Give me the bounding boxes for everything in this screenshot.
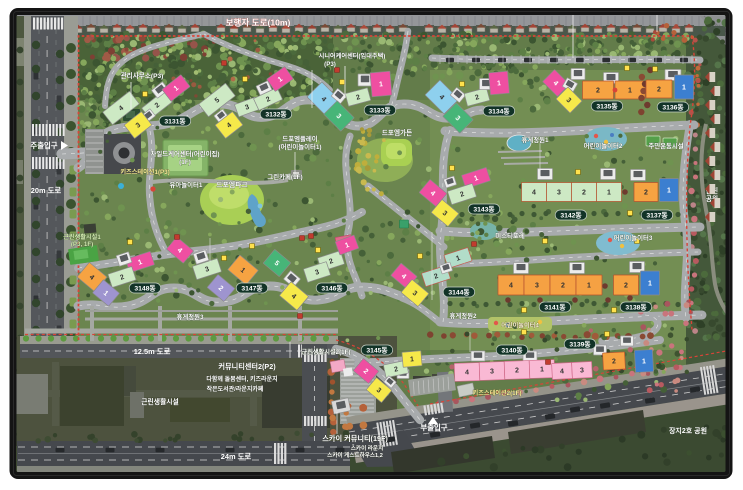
svg-text:주출입구: 주출입구 [30,141,57,150]
svg-text:1: 1 [642,358,646,365]
svg-text:4: 4 [560,368,564,375]
svg-text:20m 도로: 20m 도로 [31,186,62,195]
svg-text:어린이놀이터3: 어린이놀이터3 [614,233,653,242]
svg-text:휴게정원2: 휴게정원2 [449,311,477,320]
svg-text:3147동: 3147동 [241,284,263,292]
svg-text:스카이 게스트하우스1,2: 스카이 게스트하우스1,2 [327,451,383,459]
svg-text:3133동: 3133동 [369,106,391,114]
svg-text:근린생활시설1: 근린생활시설1 [63,233,101,241]
svg-text:(어린이놀이터1): (어린이놀이터1) [278,142,321,151]
svg-text:장지2호 공원: 장지2호 공원 [669,426,707,435]
svg-text:2: 2 [561,282,565,289]
svg-text:스카이 라운지: 스카이 라운지 [351,444,383,452]
svg-text:3139동: 3139동 [569,340,591,348]
svg-text:24m 도로: 24m 도로 [221,452,252,461]
svg-text:3136동: 3136동 [662,103,684,111]
svg-text:1: 1 [540,366,544,373]
svg-text:3: 3 [535,282,539,289]
svg-text:3: 3 [490,368,494,375]
svg-text:휴게정원1: 휴게정원1 [521,135,549,144]
svg-text:4: 4 [465,369,469,376]
svg-text:3146동: 3146동 [321,284,343,292]
svg-text:차일드케어센터(어린이집): 차일드케어센터(어린이집) [151,149,220,158]
svg-text:3: 3 [557,189,561,196]
svg-text:미스티포레: 미스티포레 [495,231,525,240]
svg-text:2: 2 [624,282,628,289]
svg-text:커뮤니티센터2(P2): 커뮤니티센터2(P2) [218,362,276,371]
svg-text:3135동: 3135동 [596,102,618,110]
svg-text:3138동: 3138동 [625,303,647,311]
svg-text:3134동: 3134동 [488,107,510,115]
svg-text:3140동: 3140동 [501,346,523,354]
svg-text:1: 1 [628,87,632,94]
svg-text:3148동: 3148동 [134,284,156,292]
svg-text:2: 2 [596,87,600,94]
svg-text:보행자 도로(10m): 보행자 도로(10m) [226,17,291,28]
svg-text:(P3): (P3) [324,61,336,68]
svg-text:시니어케어센터(임대주택): 시니어케어센터(임대주택) [319,52,386,60]
svg-text:유아놀이터1: 유아놀이터1 [170,180,203,189]
svg-text:4: 4 [509,282,513,289]
svg-text:3137동: 3137동 [646,211,668,219]
svg-text:근린생활시설2(1F): 근린생활시설2(1F) [302,348,351,356]
svg-text:1: 1 [379,81,384,88]
svg-text:부출입구: 부출입구 [420,423,447,432]
svg-text:3142동: 3142동 [560,211,582,219]
svg-text:3131동: 3131동 [164,117,186,125]
svg-text:2: 2 [582,189,586,196]
svg-text:3143동: 3143동 [473,205,495,213]
svg-text:1: 1 [607,189,611,196]
svg-text:(1F): (1F) [179,159,191,166]
svg-text:1: 1 [682,84,686,91]
svg-text:1: 1 [667,187,671,194]
svg-text:2: 2 [657,86,661,93]
svg-text:2: 2 [515,367,519,374]
svg-text:4: 4 [532,189,536,196]
svg-text:드포엠플레이: 드포엠플레이 [282,134,317,143]
svg-text:다함께 돌봄센터, 키즈라운지: 다함께 돌봄센터, 키즈라운지 [206,375,277,383]
svg-text:2: 2 [644,189,648,196]
svg-text:3141동: 3141동 [544,303,566,311]
svg-text:스카이 커뮤니티(19F): 스카이 커뮤니티(19F) [322,434,388,443]
svg-text:12.5m 도로: 12.5m 도로 [134,347,171,356]
svg-text:1: 1 [410,356,415,363]
svg-text:3145동: 3145동 [366,346,388,354]
svg-text:(P3, 1F): (P3, 1F) [71,241,93,248]
svg-text:1: 1 [497,80,502,87]
svg-text:관리사무소(P3): 관리사무소(P3) [121,71,164,80]
svg-text:3144동: 3144동 [448,288,470,296]
svg-text:1: 1 [648,280,652,287]
svg-text:3132동: 3132동 [265,110,287,118]
svg-text:드포엠가든: 드포엠가든 [382,128,412,137]
svg-text:작은도서관/라운지카페: 작은도서관/라운지카페 [207,385,264,393]
svg-text:그린카페(1F): 그린카페(1F) [267,172,302,181]
svg-text:3: 3 [580,367,584,374]
svg-text:1: 1 [587,282,591,289]
svg-text:근린생활시설: 근린생활시설 [141,397,179,406]
svg-text:드포엠파크: 드포엠파크 [216,180,248,189]
svg-text:키즈스테이션2(1F): 키즈스테이션2(1F) [473,389,522,397]
svg-text:2: 2 [612,358,616,365]
svg-text:키즈스테이션1(P3): 키즈스테이션1(P3) [120,168,169,176]
svg-text:어린이놀이터4: 어린이놀이터4 [501,322,539,330]
svg-text:어린이놀이터2: 어린이놀이터2 [584,141,623,150]
svg-text:휴게정원3: 휴게정원3 [176,312,204,321]
svg-text:주민운동시설: 주민운동시설 [648,141,683,150]
